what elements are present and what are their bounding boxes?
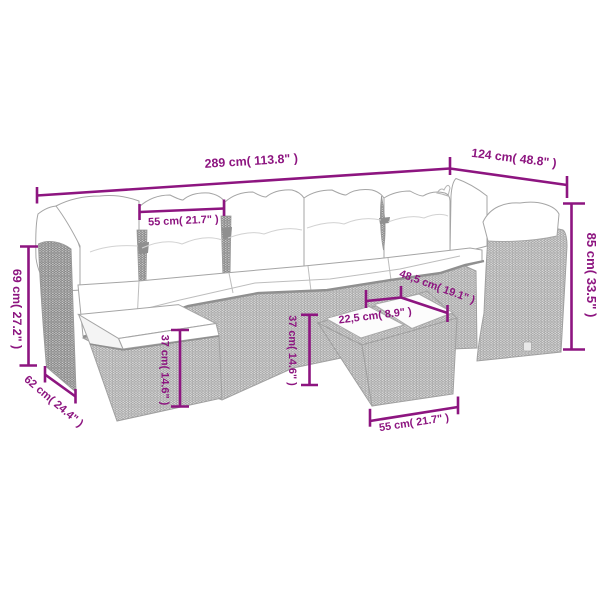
svg-text:85 cm( 33.5" ): 85 cm( 33.5" ) <box>584 233 599 318</box>
svg-text:69 cm( 27.2" ): 69 cm( 27.2" ) <box>10 269 24 349</box>
svg-text:124 cm( 48.8" ): 124 cm( 48.8" ) <box>471 146 558 170</box>
svg-text:289 cm( 113.8" ): 289 cm( 113.8" ) <box>204 151 298 171</box>
svg-text:37 cm( 14.6" ): 37 cm( 14.6" ) <box>286 315 298 386</box>
svg-text:37 cm( 14.6" ): 37 cm( 14.6" ) <box>159 335 171 406</box>
